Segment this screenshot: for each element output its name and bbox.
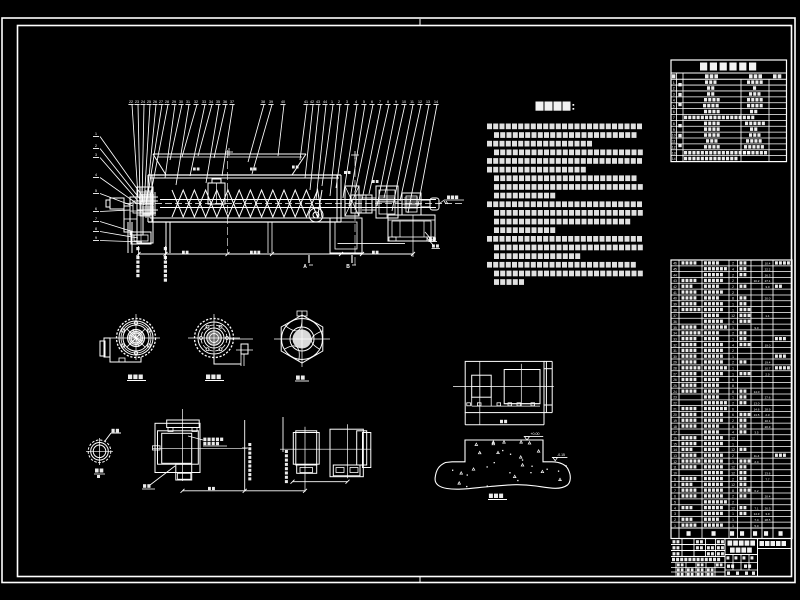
svg-text:8: 8 (95, 227, 97, 231)
svg-text:7: 7 (673, 116, 675, 120)
svg-text:21: 21 (673, 407, 677, 411)
svg-text:4: 4 (732, 343, 734, 347)
svg-text:2: 2 (732, 402, 734, 406)
svg-text:1: 1 (732, 396, 734, 400)
svg-text:42: 42 (310, 100, 314, 104)
svg-text:A: A (303, 264, 307, 270)
svg-text:3: 3 (673, 93, 675, 97)
svg-text:27.1: 27.1 (765, 279, 771, 283)
svg-text:32: 32 (673, 343, 677, 347)
svg-text:2: 2 (674, 518, 676, 522)
svg-text:2: 2 (732, 291, 734, 295)
svg-text:8: 8 (732, 384, 734, 388)
svg-text:9: 9 (395, 100, 397, 104)
svg-text:13: 13 (426, 100, 430, 104)
svg-text:8: 8 (674, 483, 676, 487)
svg-text:2.3: 2.3 (765, 413, 770, 417)
svg-text:1: 1 (732, 337, 734, 341)
svg-text:1: 1 (732, 355, 734, 359)
svg-text:2.4: 2.4 (754, 460, 759, 464)
svg-text:28: 28 (165, 100, 169, 104)
svg-text:5.0: 5.0 (754, 524, 759, 528)
svg-text:10.4: 10.4 (765, 262, 771, 266)
svg-text:14: 14 (672, 157, 676, 161)
svg-text:2: 2 (338, 100, 340, 104)
svg-text:26: 26 (673, 378, 677, 382)
svg-text:27: 27 (159, 100, 163, 104)
svg-text:3: 3 (346, 100, 348, 104)
svg-text:6: 6 (732, 407, 734, 411)
svg-text:6.2: 6.2 (754, 489, 759, 493)
svg-text:12: 12 (731, 506, 735, 510)
svg-text:33: 33 (202, 100, 206, 104)
svg-text:2: 2 (732, 285, 734, 289)
svg-text:10: 10 (672, 134, 676, 138)
svg-text:2: 2 (732, 273, 734, 277)
svg-text:14.6: 14.6 (754, 407, 760, 411)
svg-text:7.1: 7.1 (754, 506, 759, 510)
svg-text:6: 6 (674, 495, 676, 499)
svg-text:18: 18 (673, 425, 677, 429)
svg-text:14.0: 14.0 (754, 390, 760, 394)
svg-text:20: 20 (673, 413, 677, 417)
svg-text:11.4: 11.4 (754, 454, 760, 458)
svg-text:3.0: 3.0 (765, 512, 770, 516)
svg-text:29: 29 (172, 100, 176, 104)
svg-text:7.7: 7.7 (765, 477, 770, 481)
svg-text:10.2: 10.2 (754, 279, 760, 283)
svg-text:24: 24 (141, 100, 145, 104)
svg-text:6: 6 (673, 110, 675, 114)
svg-text:46: 46 (673, 262, 677, 266)
svg-text:16: 16 (673, 436, 677, 440)
svg-text:8: 8 (387, 100, 389, 104)
svg-text:30: 30 (673, 355, 677, 359)
svg-text:6: 6 (732, 378, 734, 382)
svg-text:12: 12 (673, 460, 677, 464)
svg-text:41: 41 (304, 100, 308, 104)
svg-text:25: 25 (147, 100, 151, 104)
svg-text:5: 5 (673, 104, 675, 108)
svg-text:34: 34 (673, 332, 677, 336)
svg-text:1: 1 (732, 372, 734, 376)
svg-text:9: 9 (673, 128, 675, 132)
svg-text:15: 15 (673, 442, 677, 446)
svg-text:43: 43 (316, 100, 320, 104)
svg-text:23: 23 (673, 396, 677, 400)
svg-text:10.1: 10.1 (765, 419, 771, 423)
svg-text:40: 40 (673, 297, 677, 301)
svg-text:23.6: 23.6 (765, 471, 771, 475)
svg-text:12: 12 (731, 466, 735, 470)
svg-text:31: 31 (673, 349, 677, 353)
svg-text:6: 6 (371, 100, 373, 104)
svg-text:14: 14 (673, 448, 677, 452)
svg-text:1.1: 1.1 (765, 314, 770, 318)
svg-text:4: 4 (673, 98, 675, 102)
svg-text:38: 38 (673, 308, 677, 312)
svg-text:32: 32 (194, 100, 198, 104)
svg-text:8: 8 (732, 425, 734, 429)
svg-text:9: 9 (95, 236, 97, 240)
svg-text:22: 22 (673, 402, 677, 406)
svg-text:7: 7 (674, 489, 676, 493)
svg-text:13.0: 13.0 (754, 402, 760, 406)
svg-text:26: 26 (153, 100, 157, 104)
svg-text:+0.00: +0.00 (530, 432, 539, 436)
svg-text:38: 38 (261, 100, 265, 104)
svg-text:13: 13 (673, 454, 677, 458)
svg-text:19: 19 (673, 419, 677, 423)
svg-text:45: 45 (673, 268, 677, 272)
svg-text:10.7: 10.7 (765, 367, 771, 371)
svg-text:2: 2 (732, 332, 734, 336)
svg-text:1: 1 (732, 367, 734, 371)
svg-text:27: 27 (673, 372, 677, 376)
svg-text:28.9: 28.9 (765, 407, 771, 411)
svg-text:2: 2 (732, 495, 734, 499)
svg-text:35: 35 (673, 326, 677, 330)
svg-text:33: 33 (673, 337, 677, 341)
svg-text:1: 1 (732, 512, 734, 516)
svg-text:6: 6 (95, 207, 97, 211)
svg-text:39: 39 (269, 100, 273, 104)
svg-text:27.6: 27.6 (765, 396, 771, 400)
svg-text:2.0: 2.0 (765, 372, 770, 376)
svg-text:19.4: 19.4 (765, 361, 771, 365)
svg-text:1: 1 (732, 524, 734, 528)
svg-text:20.4: 20.4 (765, 495, 771, 499)
svg-text:17: 17 (673, 431, 677, 435)
svg-text:26.5: 26.5 (765, 506, 771, 510)
svg-text:1: 1 (732, 302, 734, 306)
svg-text:11: 11 (410, 100, 414, 104)
svg-text:-0.15: -0.15 (557, 453, 565, 457)
svg-text:2: 2 (732, 349, 734, 353)
svg-text:13: 13 (672, 151, 676, 155)
svg-text:1: 1 (732, 326, 734, 330)
svg-text:11: 11 (672, 140, 676, 144)
svg-text:10: 10 (402, 100, 406, 104)
svg-text:2: 2 (732, 419, 734, 423)
svg-text:40: 40 (281, 100, 285, 104)
svg-text:44: 44 (673, 273, 677, 277)
svg-text:30: 30 (179, 100, 183, 104)
svg-text:4: 4 (732, 268, 734, 272)
svg-text:14: 14 (434, 100, 438, 104)
svg-text:2: 2 (732, 477, 734, 481)
svg-text:41: 41 (673, 291, 677, 295)
svg-text:22: 22 (129, 100, 133, 104)
svg-text:4: 4 (732, 320, 734, 324)
svg-text:8: 8 (732, 390, 734, 394)
svg-text:13.5: 13.5 (754, 413, 760, 417)
svg-text:3.5: 3.5 (754, 431, 759, 435)
svg-text:22.2: 22.2 (765, 268, 771, 272)
svg-text:12: 12 (731, 483, 735, 487)
svg-text:8: 8 (673, 122, 675, 126)
svg-text:7: 7 (95, 217, 97, 221)
svg-text:9.0: 9.0 (754, 326, 759, 330)
svg-text:2: 2 (732, 262, 734, 266)
svg-text:34: 34 (209, 100, 213, 104)
svg-text:1: 1 (732, 460, 734, 464)
svg-text:36: 36 (223, 100, 227, 104)
svg-text:12: 12 (731, 471, 735, 475)
svg-text:B: B (346, 264, 350, 270)
svg-text:1: 1 (331, 100, 333, 104)
svg-text:12: 12 (731, 448, 735, 452)
svg-text:3: 3 (674, 512, 676, 516)
svg-text:2: 2 (732, 361, 734, 365)
svg-text:5: 5 (363, 100, 365, 104)
svg-text:8: 8 (732, 297, 734, 301)
svg-text:11: 11 (673, 466, 677, 470)
svg-text:1: 1 (732, 308, 734, 312)
svg-text:29: 29 (673, 361, 677, 365)
svg-text:1: 1 (674, 524, 676, 528)
svg-text:43: 43 (673, 279, 677, 283)
svg-text:2: 2 (732, 454, 734, 458)
svg-text:4: 4 (95, 173, 97, 177)
svg-text:12: 12 (731, 436, 735, 440)
svg-text:28: 28 (673, 367, 677, 371)
svg-text:37: 37 (673, 314, 677, 318)
svg-text:2: 2 (673, 87, 675, 91)
svg-text:25: 25 (673, 384, 677, 388)
svg-text:31: 31 (186, 100, 190, 104)
svg-text:20.0: 20.0 (765, 297, 771, 301)
svg-text:19.0: 19.0 (765, 343, 771, 347)
svg-text:12: 12 (418, 100, 422, 104)
svg-text:2: 2 (732, 501, 734, 505)
svg-text:7: 7 (379, 100, 381, 104)
svg-text:4: 4 (674, 506, 676, 510)
svg-text:44: 44 (323, 100, 327, 104)
svg-text:7.4: 7.4 (754, 518, 759, 522)
svg-text:39: 39 (673, 302, 677, 306)
svg-text:2: 2 (732, 279, 734, 283)
svg-text:36: 36 (673, 320, 677, 324)
svg-text:5: 5 (95, 189, 97, 193)
svg-text:9: 9 (674, 477, 676, 481)
svg-text:42: 42 (673, 285, 677, 289)
svg-text:4: 4 (355, 100, 357, 104)
svg-text:23: 23 (135, 100, 139, 104)
svg-text:10: 10 (673, 471, 677, 475)
svg-text:5: 5 (674, 501, 676, 505)
svg-text:1: 1 (732, 518, 734, 522)
svg-text:6: 6 (732, 413, 734, 417)
svg-text:1: 1 (95, 132, 97, 136)
svg-text:35: 35 (216, 100, 220, 104)
svg-text:1: 1 (673, 81, 675, 85)
svg-text:20.3: 20.3 (765, 425, 771, 429)
svg-text:37: 37 (230, 100, 234, 104)
svg-text:12: 12 (731, 314, 735, 318)
svg-text:3.0: 3.0 (765, 285, 770, 289)
svg-text:12: 12 (672, 145, 676, 149)
svg-text:2: 2 (95, 144, 97, 148)
svg-text:3: 3 (95, 153, 97, 157)
svg-text:26.3: 26.3 (765, 273, 771, 277)
svg-text:14.3: 14.3 (754, 512, 760, 516)
svg-text:4: 4 (732, 431, 734, 435)
svg-text:28.5: 28.5 (765, 518, 771, 522)
svg-text:24: 24 (673, 390, 677, 394)
svg-text:1: 1 (732, 442, 734, 446)
svg-text:8: 8 (732, 489, 734, 493)
